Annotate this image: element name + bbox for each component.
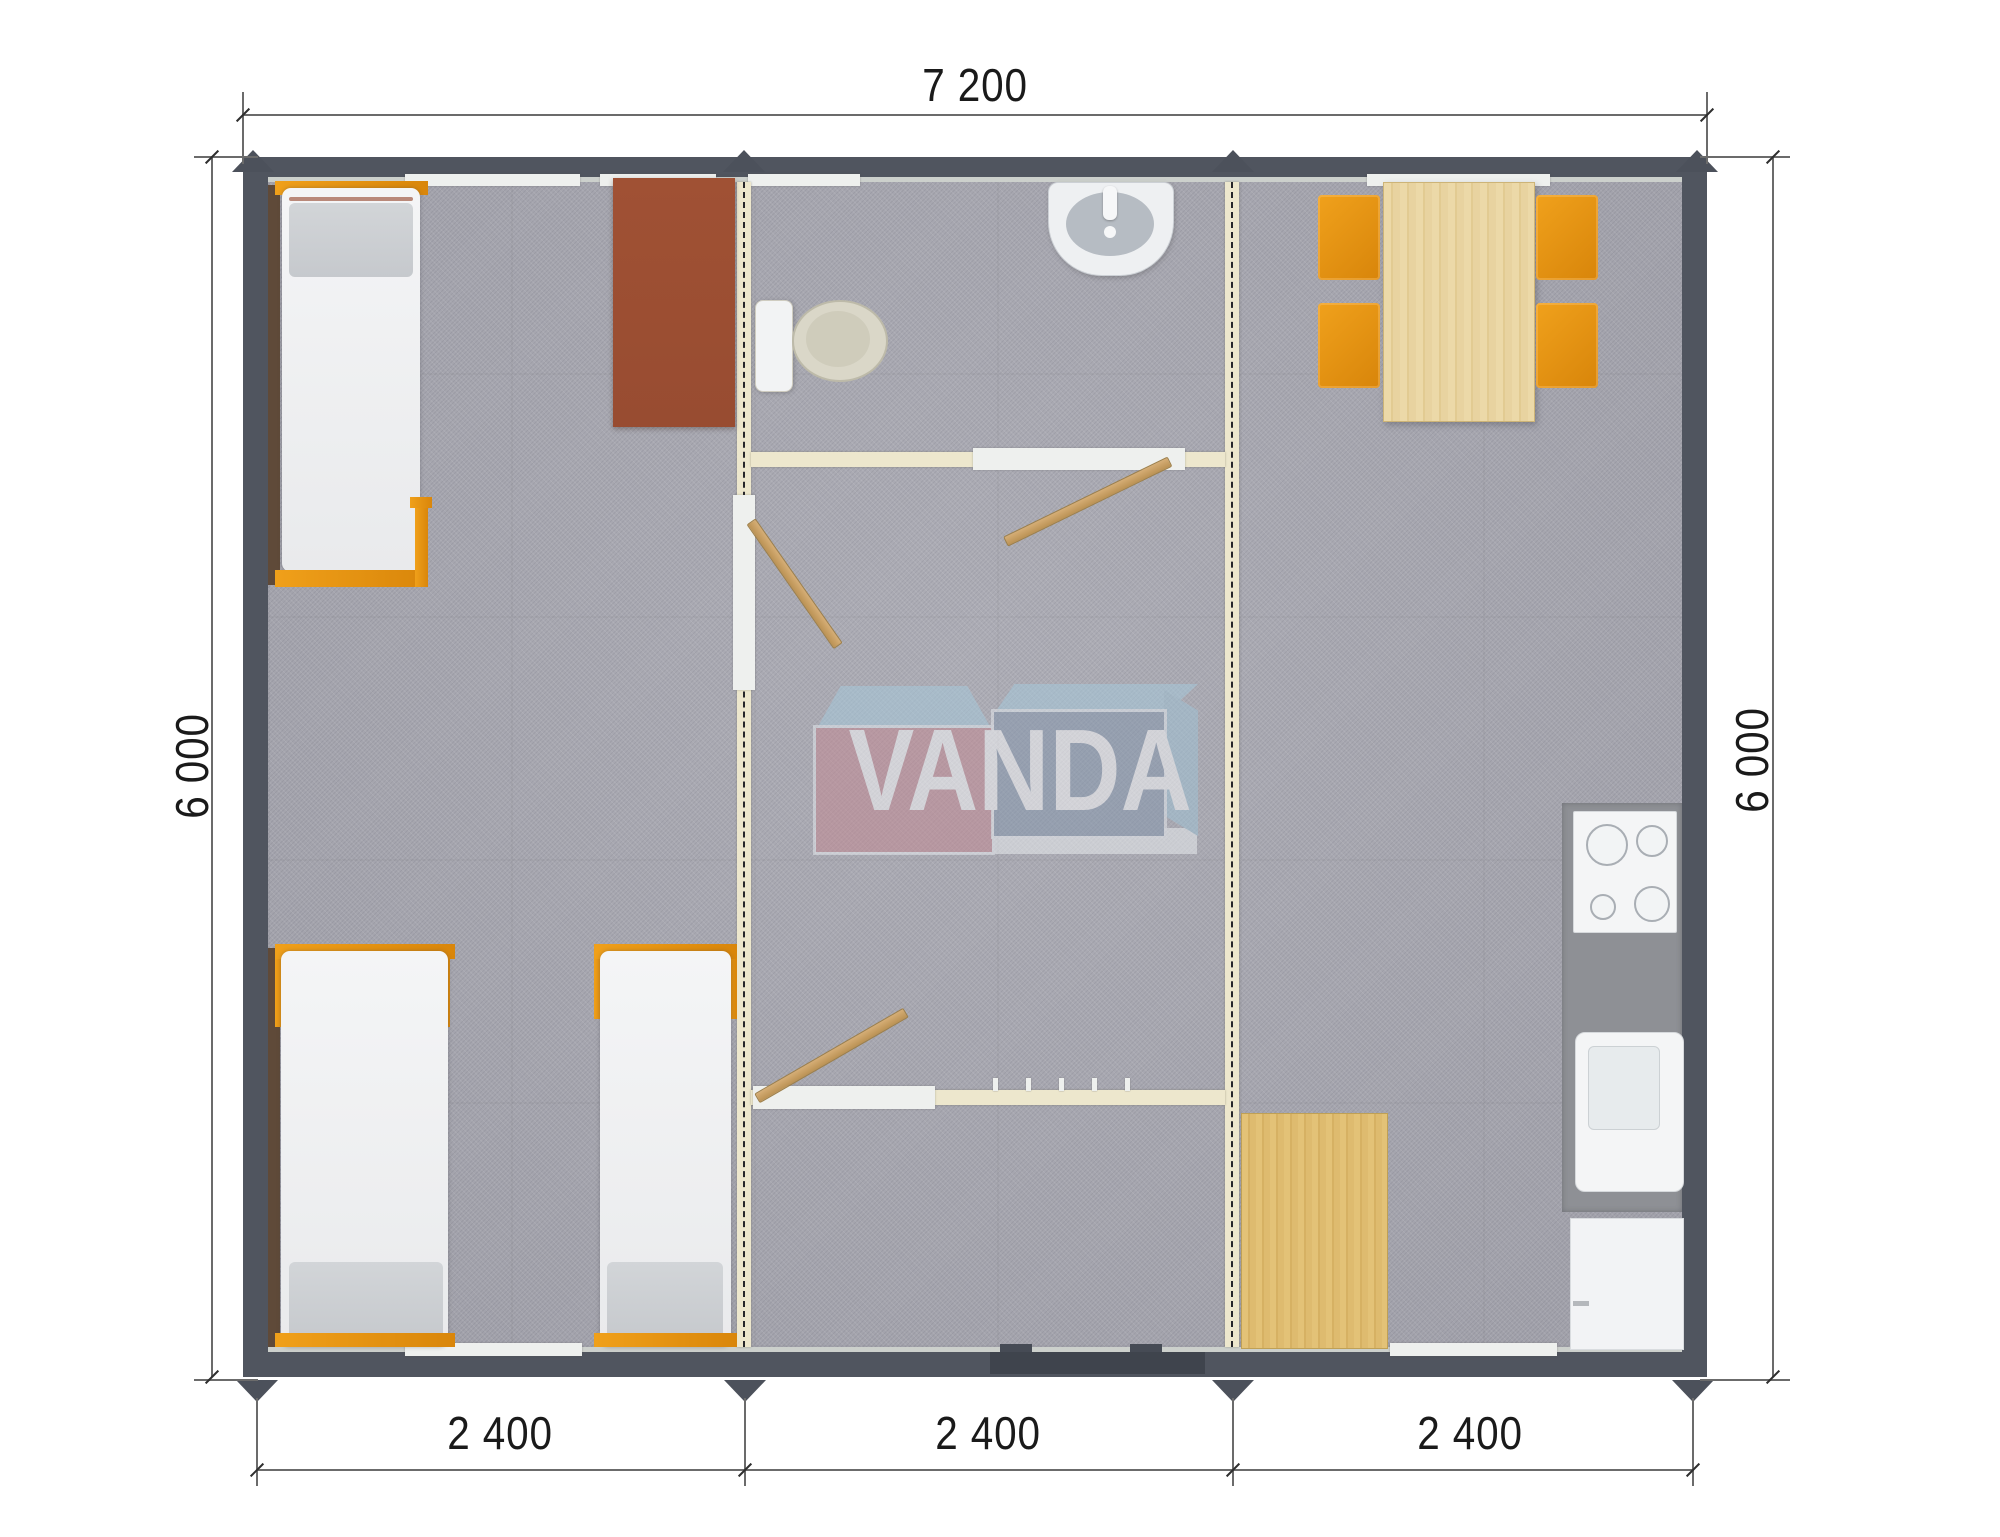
coat-hook [993,1078,998,1091]
faucet-head-icon [1104,226,1116,238]
chair [1536,303,1598,388]
bed-side-rail [268,185,280,585]
chair [1318,303,1380,388]
bed-frame-foot [594,1333,737,1347]
dim-ext-line [242,92,244,164]
kitchen-sink-basin [1588,1046,1660,1130]
bed-frame-foot-post [415,497,428,587]
burner-icon [1586,824,1628,866]
dim-line-bottom [257,1469,1693,1471]
entrance-door-tab [1130,1344,1162,1352]
toilet-seat [806,311,870,367]
dim-ext-line [1700,156,1790,158]
window-bottom-right [1390,1343,1557,1356]
window-top-left-1 [405,174,580,186]
dim-label-top: 7 200 [875,58,1075,112]
joint-dash-line [743,182,745,1347]
joint-marker-icon [1676,150,1718,172]
dim-line-top [243,114,1707,116]
bed-pillow [289,203,413,277]
toilet-tank [755,300,793,392]
entrance-door-tab [1000,1344,1032,1352]
dim-ext-line [1692,1398,1694,1486]
joint-marker-icon [1212,150,1254,172]
window-top-bathroom [748,174,860,186]
bed-frame-foot [275,1333,455,1347]
dim-ext-line [1706,92,1708,164]
left-wall [243,157,268,1377]
joint-marker-icon [232,150,274,172]
coat-hook [1026,1078,1031,1091]
cabinet [1570,1218,1684,1350]
dim-ext-line [194,156,258,158]
dim-label-bottom-3: 2 400 [1370,1406,1570,1460]
bed-frame-foot [275,570,428,587]
vanda-logo: VANDA [810,660,1210,870]
bed-pillow [607,1262,723,1340]
chair [1536,195,1598,280]
bed-headboard-line [289,197,413,201]
burner-icon [1636,825,1668,857]
floor-mat [1241,1113,1388,1349]
joint-dash-line [1231,182,1233,1347]
dim-ext-line [256,1398,258,1486]
wardrobe [613,178,735,427]
dim-ext-line [1232,1398,1234,1486]
module-joint-wall-right [1225,182,1239,1347]
dim-ext-line [194,1379,258,1381]
dim-label-bottom-1: 2 400 [400,1406,600,1460]
dim-label-right: 6 000 [1725,660,1779,860]
coat-hook [1059,1078,1064,1091]
bed-frame-foot-tab [410,497,432,508]
dim-label-left: 6 000 [165,666,219,866]
cooktop [1573,811,1677,933]
dim-label-bottom-2: 2 400 [888,1406,1088,1460]
logo-text: VANDA [849,712,1172,828]
burner-icon [1590,894,1616,920]
kitchen-sink [1575,1032,1684,1192]
chair [1318,195,1380,280]
dining-table [1383,182,1535,422]
faucet-icon [1103,186,1117,220]
coat-hook [1125,1078,1130,1091]
cabinet-handle [1573,1301,1589,1306]
right-wall [1682,157,1707,1377]
dim-ext-line [1700,1379,1790,1381]
floor-plan-canvas: VANDA 7 200 6 000 6 000 [0,0,2000,1537]
module-joint-wall-left [737,182,751,1347]
burner-icon [1634,886,1670,922]
entrance-door [990,1352,1205,1374]
bed-pillow [289,1262,443,1340]
joint-marker-icon [723,150,765,172]
dim-ext-line [744,1398,746,1486]
coat-hook [1092,1078,1097,1091]
